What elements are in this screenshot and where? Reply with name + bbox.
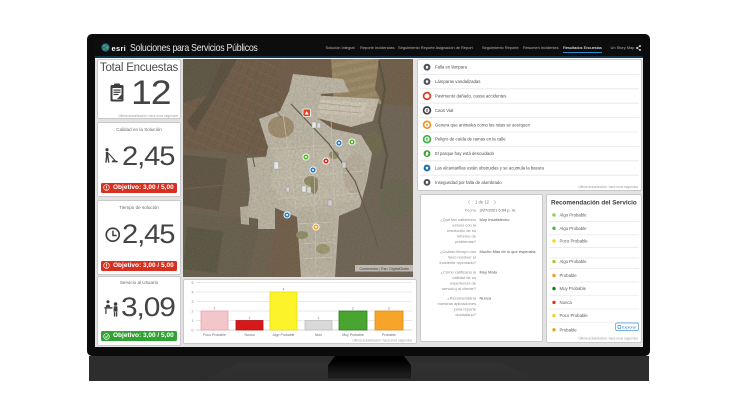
svg-text:Poco Probable: Poco Probable	[203, 333, 226, 337]
svg-text:2: 2	[192, 309, 194, 313]
svg-text:Nunca: Nunca	[559, 299, 572, 304]
svg-text:resolución de su: resolución de su	[446, 228, 475, 233]
svg-text:4: 4	[192, 290, 194, 294]
svg-text:experiencia de: experiencia de	[449, 280, 476, 285]
svg-text:Pavimento dañado, causa accide: Pavimento dañado, causa accidentes	[435, 94, 506, 99]
svg-text:¿Cómo calificaría la: ¿Cómo calificaría la	[440, 269, 476, 274]
svg-text:1 de 12: 1 de 12	[475, 199, 490, 204]
svg-text:1: 1	[192, 319, 194, 323]
svg-text:Nunca: Nunca	[244, 333, 254, 337]
svg-text:Probable: Probable	[559, 273, 577, 278]
svg-text:3: 3	[192, 300, 194, 304]
svg-text:Inseguridad por falta de alumb: Inseguridad por falta de alumbrado	[435, 180, 502, 185]
svg-text:2: 2	[388, 307, 390, 311]
svg-text:Nulo: Nulo	[315, 333, 322, 337]
svg-text:Probable: Probable	[382, 333, 396, 337]
svg-text:Última actualización: hace uno: Última actualización: hace unos segundos	[352, 338, 412, 343]
svg-text:informe de: informe de	[457, 233, 477, 238]
svg-text:nuestras aplicaciones: nuestras aplicaciones	[437, 301, 475, 306]
svg-text:Algo Probable: Algo Probable	[559, 212, 587, 217]
svg-text:¿Cuánto tiempo nos: ¿Cuánto tiempo nos	[439, 249, 475, 254]
svg-text:¿Recomendaría: ¿Recomendaría	[447, 295, 476, 300]
svg-text:Falla en lámpara: Falla en lámpara	[435, 65, 468, 70]
svg-text:Algo Probable: Algo Probable	[273, 333, 295, 337]
svg-text:estuvo con la: estuvo con la	[452, 222, 476, 227]
svg-text:Lámparas vandalizadas: Lámparas vandalizadas	[435, 79, 480, 84]
svg-text:Algo Probable: Algo Probable	[559, 259, 587, 264]
svg-text:Muy Insatisfecho: Muy Insatisfecho	[479, 217, 510, 222]
svg-text:llevó resolver el: llevó resolver el	[448, 254, 476, 259]
svg-text:incidente reportado?: incidente reportado?	[439, 260, 476, 265]
svg-text:Explorar: Explorar	[622, 325, 637, 329]
svg-text:ciudadano?: ciudadano?	[455, 312, 476, 317]
svg-text:⟩: ⟩	[494, 199, 496, 204]
svg-text:calidad de su: calidad de su	[452, 275, 476, 280]
svg-text:Última actualización: hace uno: Última actualización: hace unos segundos	[578, 184, 638, 189]
svg-text:servicio) al cliente?: servicio) al cliente?	[441, 286, 476, 291]
svg-text:problemas?: problemas?	[455, 239, 477, 244]
svg-text:2: 2	[214, 307, 216, 311]
svg-text:0: 0	[192, 328, 194, 332]
svg-text:Muy Probable: Muy Probable	[559, 286, 586, 291]
svg-text:Las alcantarillas están obstru: Las alcantarillas están obstruidas y se …	[435, 166, 545, 171]
svg-text:1: 1	[318, 316, 320, 320]
svg-text:Mucho Más de lo que esperaba: Mucho Más de lo que esperaba	[479, 249, 536, 254]
svg-text:3/27/2021 6:04 p. m.: 3/27/2021 6:04 p. m.	[479, 207, 516, 212]
svg-text:Caos Vial: Caos Vial	[435, 108, 453, 113]
svg-text:5: 5	[192, 281, 194, 285]
svg-text:Última actualización: hace uno: Última actualización: hace unos segundos	[578, 335, 638, 340]
svg-text:para reporte: para reporte	[454, 306, 477, 311]
svg-text:Poco Probable: Poco Probable	[559, 313, 588, 318]
svg-text:4: 4	[283, 288, 285, 292]
svg-text:Muy Probable: Muy Probable	[342, 333, 364, 337]
svg-text:Fecha: Fecha	[464, 207, 476, 212]
svg-text:Algo Probable: Algo Probable	[559, 225, 587, 230]
svg-text:Poco Probable: Poco Probable	[559, 238, 588, 243]
svg-text:¿Qué tan satisfecho: ¿Qué tan satisfecho	[440, 217, 477, 222]
svg-text:El parque hay está descuidado: El parque hay está descuidado	[435, 151, 495, 156]
svg-text:1: 1	[249, 316, 251, 320]
svg-text:Recomendación del Servicio: Recomendación del Servicio	[551, 199, 637, 206]
svg-text:Genera que animales como las r: Genera que animales como las ratas se ac…	[435, 122, 531, 127]
svg-text:Peligro de caída de ramas en l: Peligro de caída de ramas en la calle	[435, 137, 506, 142]
svg-text:Muy Mala: Muy Mala	[479, 269, 497, 274]
svg-text:⟨: ⟨	[468, 199, 470, 204]
svg-text:Contenedor | Esri, DigitalGlob: Contenedor | Esri, DigitalGlobe	[360, 267, 409, 271]
svg-text:2: 2	[352, 307, 354, 311]
svg-text:Probable: Probable	[559, 327, 577, 332]
svg-text:Nunca: Nunca	[479, 295, 491, 300]
